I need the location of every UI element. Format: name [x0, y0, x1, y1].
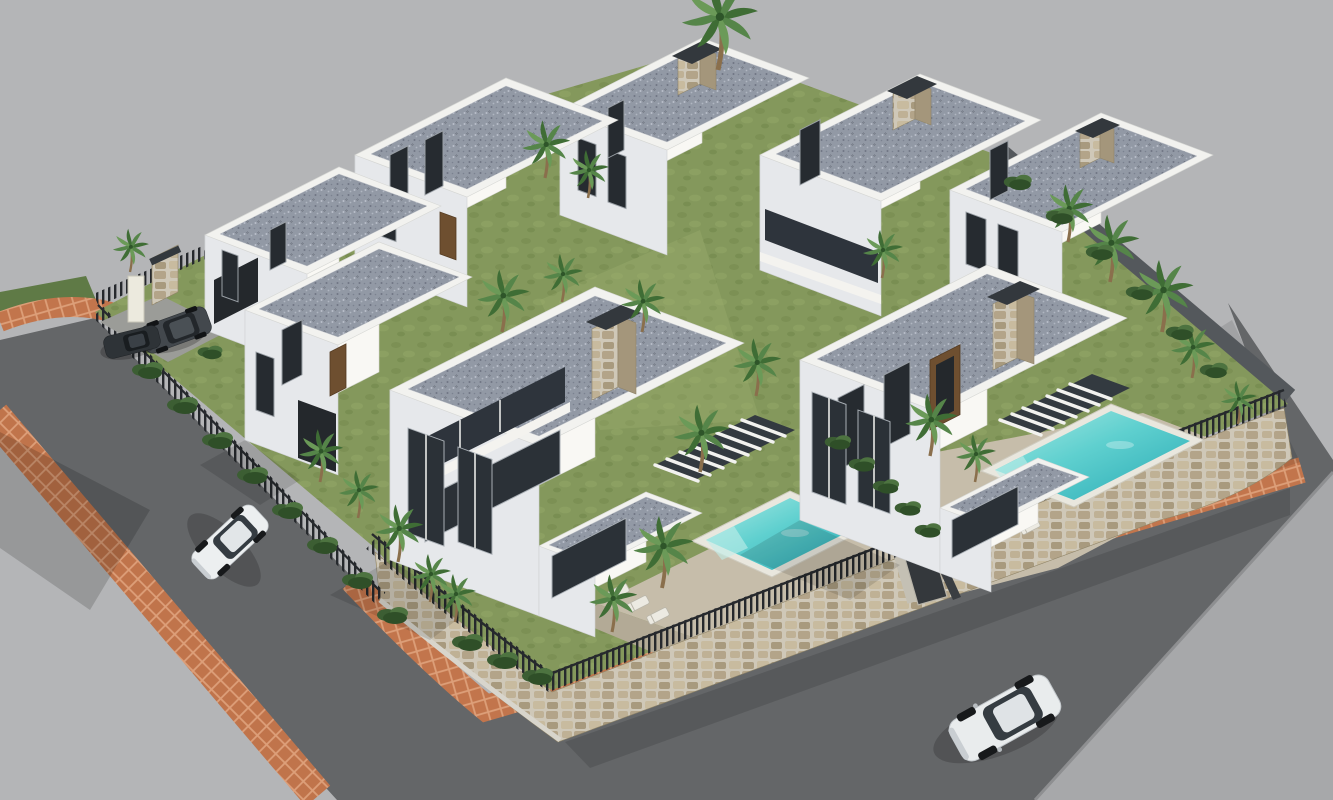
window	[800, 120, 820, 185]
window	[458, 447, 492, 554]
window	[966, 212, 986, 271]
window	[990, 141, 1008, 200]
door-wood	[330, 344, 346, 396]
window	[256, 352, 274, 417]
architectural-render-canvas	[0, 0, 1333, 800]
window	[608, 150, 626, 209]
window	[270, 222, 286, 270]
window	[408, 428, 444, 546]
window	[425, 131, 443, 195]
window	[282, 320, 302, 385]
window	[608, 100, 624, 158]
render-stage	[0, 0, 1333, 800]
window	[222, 250, 238, 302]
door-wood	[440, 212, 456, 260]
gate-pillar-white	[128, 276, 144, 322]
